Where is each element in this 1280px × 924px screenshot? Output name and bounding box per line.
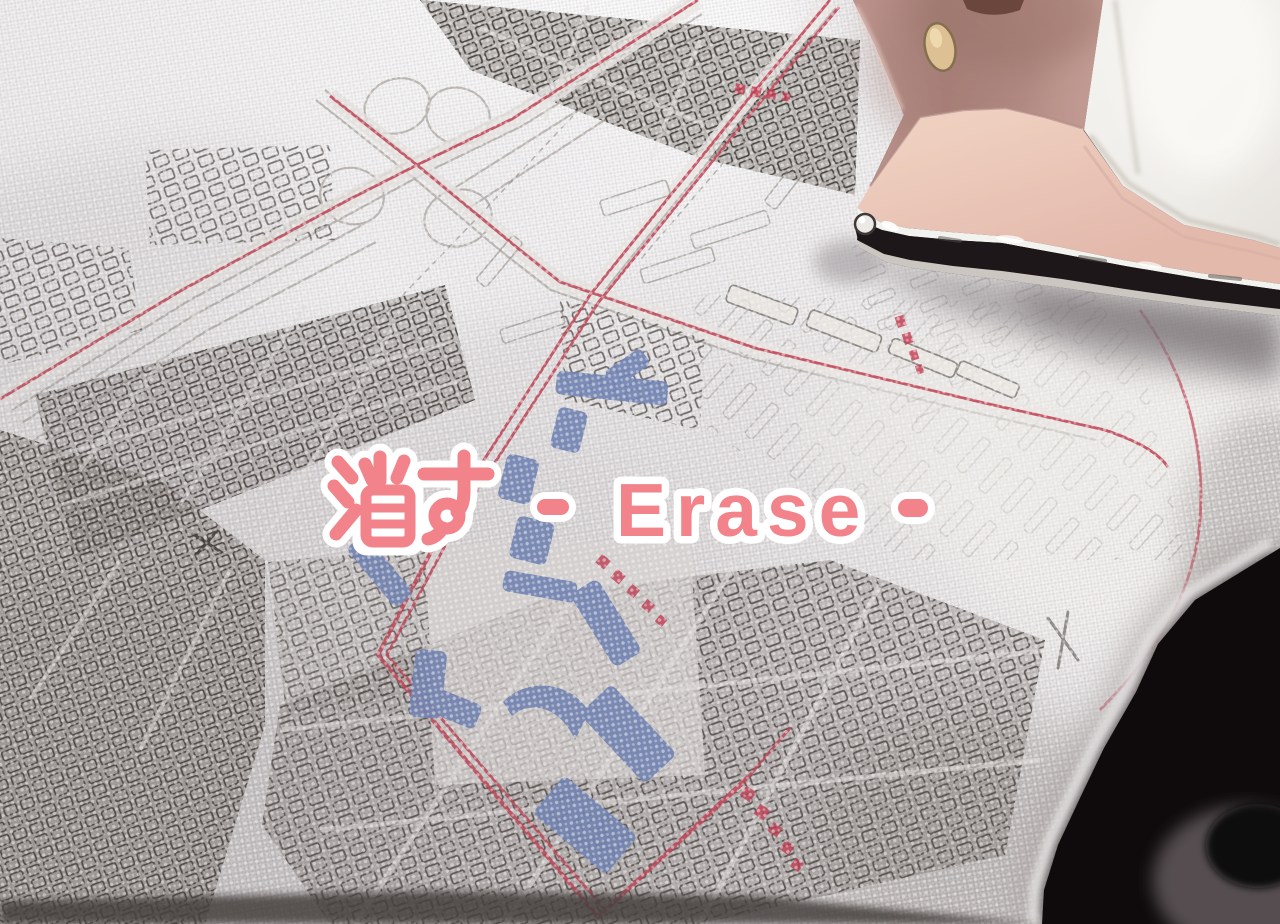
svg-text:Erase: Erase <box>616 468 870 552</box>
